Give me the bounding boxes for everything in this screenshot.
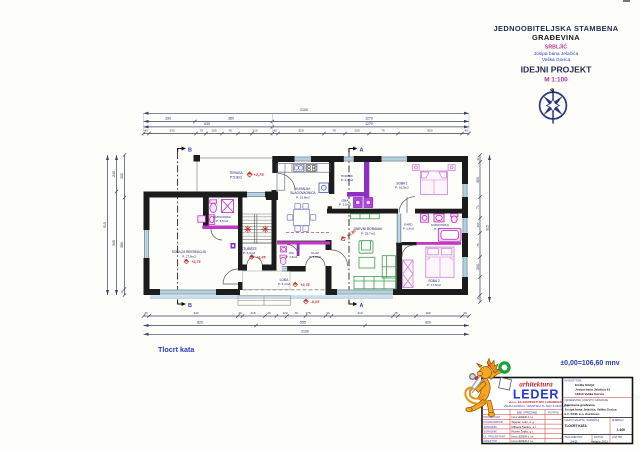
svg-text:40: 40 [273,129,277,133]
svg-text:10410 Velika Gorica: 10410 Velika Gorica [575,392,604,396]
svg-text:±0,00=106,60 mnv: ±0,00=106,60 mnv [560,360,619,367]
svg-text:40: 40 [463,311,467,315]
svg-text:70: 70 [294,311,298,315]
svg-text:915: 915 [485,225,489,231]
svg-text:P: 1,5m2: P: 1,5m2 [286,255,298,259]
svg-text:SOBA ZA REKREACIJU: SOBA ZA REKREACIJU [172,250,207,254]
svg-text:P: 2,4m2: P: 2,4m2 [341,178,353,182]
svg-text:360: 360 [228,116,234,120]
svg-text:M 1:100: M 1:100 [544,77,568,84]
svg-text:P: 6,9m2: P: 6,9m2 [243,251,255,255]
svg-text:400: 400 [425,311,430,315]
svg-text:200: 200 [476,264,480,270]
svg-text:Mihaela Markov, a.t.: Mihaela Markov, a.t. [512,425,537,429]
svg-text:P: 5,5m2: P: 5,5m2 [216,219,228,223]
svg-text:GRAĐEVINA, MJESTO GRADNJE: GRAĐEVINA, MJESTO GRADNJE [565,398,609,402]
svg-text:330: 330 [169,129,174,133]
svg-text:240: 240 [112,171,116,177]
svg-text:40: 40 [326,311,330,315]
svg-text:P: 1,9m2: P: 1,9m2 [403,226,415,230]
svg-text:40: 40 [464,129,468,133]
svg-text:+2,75: +2,75 [253,172,264,177]
svg-text:2100: 2100 [300,108,308,112]
svg-text:Emilia Srbljić: Emilia Srbljić [575,383,595,387]
svg-text:40: 40 [238,311,242,315]
svg-text:VELIKA GORICA, HRVATSKA TL./FA: VELIKA GORICA, HRVATSKA TL./FAX 01/6265-… [504,404,569,408]
svg-text:DNEVNI BORAVAK: DNEVNI BORAVAK [354,227,384,231]
svg-text:75: 75 [394,311,398,315]
svg-text:Ivna LEDER d.i.a.: Ivna LEDER d.i.a. [512,415,534,419]
svg-text:555: 555 [300,321,306,325]
svg-text:100: 100 [211,129,216,133]
svg-text:330: 330 [165,116,171,120]
svg-text:100: 100 [476,222,480,227]
svg-text:Josipa bana Jelačića, Velika G: Josipa bana Jelačića, Velika Gorica [565,408,617,412]
svg-text:20: 20 [267,311,271,315]
svg-text:P: 16,3m2: P: 16,3m2 [395,186,409,190]
svg-text:DIREKTOR: DIREKTOR [484,439,497,443]
svg-text:P: 27,8m2: P: 27,8m2 [182,254,196,258]
svg-text:INVESTITOR:: INVESTITOR: [565,379,583,383]
svg-text:2100: 2100 [301,330,309,334]
svg-text:B: B [188,303,192,309]
svg-text:KOORDINATOR: KOORDINATOR [484,420,503,424]
svg-text:40: 40 [144,311,148,315]
svg-text:GL. PROJEKTANT: GL. PROJEKTANT [484,434,506,438]
svg-text:k.č. 2345, k.o. Kurilovec: k.č. 2345, k.o. Kurilovec [565,412,600,416]
svg-text:75: 75 [476,243,480,247]
svg-text:B: B [188,148,192,154]
svg-text:LIST BR.: LIST BR. [612,435,623,439]
svg-text:380: 380 [120,242,124,248]
svg-text:Stjepan Leko, d. g.: Stjepan Leko, d. g. [512,420,536,424]
svg-text:71: 71 [476,205,480,209]
svg-text:GRAĐEVINA: GRAĐEVINA [532,33,580,42]
svg-text:+1,45: +1,45 [256,256,266,260]
svg-text:Ivna LEDER d.i.a.: Ivna LEDER d.i.a. [512,439,534,443]
svg-text:Velika Gorica: Velika Gorica [542,57,571,63]
svg-text:IME I PREZIME: IME I PREZIME [517,410,537,414]
svg-text:120: 120 [282,311,287,315]
svg-text:Josipa bana Jelačića: Josipa bana Jelačića [534,51,579,57]
svg-text:-0,03: -0,03 [311,300,321,304]
svg-text:A: A [360,148,364,154]
svg-text:P: 1,5m2: P: 1,5m2 [339,203,351,207]
svg-text:343: 343 [193,311,198,315]
svg-text:210: 210 [252,129,257,133]
svg-text:300: 300 [476,177,480,183]
svg-text:POTPIS: POTPIS [548,410,559,414]
svg-text:P:5,0m2: P:5,0m2 [230,175,242,179]
svg-text:TLOCRT KATA: TLOCRT KATA [565,424,588,428]
svg-text:TERASA: TERASA [229,171,243,175]
svg-text:1270: 1270 [365,116,373,120]
svg-text:P: 15,8m2: P: 15,8m2 [296,195,310,199]
svg-text:SRBLJIĆ: SRBLJIĆ [545,43,567,51]
svg-text:A: A [360,303,364,309]
svg-text:SURADNIK: SURADNIK [484,425,498,429]
svg-text:75: 75 [381,129,385,133]
svg-text:320: 320 [298,129,303,133]
svg-text:P: 6,3m2: P: 6,3m2 [278,282,290,286]
svg-text:200: 200 [354,129,359,133]
svg-text:P: 25,7m2: P: 25,7m2 [361,231,375,235]
svg-text:215: 215 [250,311,255,315]
svg-text:73: 73 [199,129,203,133]
svg-text:Robert Željko, g.t.: Robert Željko, g.t. [512,429,534,434]
svg-text:Tlocrt kata: Tlocrt kata [158,345,195,354]
svg-text:920: 920 [425,321,431,325]
svg-text:70: 70 [332,129,336,133]
svg-text:40: 40 [144,129,148,133]
svg-text:NAZIV NACRTA, SADRŽAJ: NAZIV NACRTA, SADRŽAJ [565,417,600,422]
svg-text:+2,75: +2,75 [300,283,310,287]
svg-text:IDEJNI PROJEKT: IDEJNI PROJEKT [521,65,592,75]
svg-text:P: 4,5m2: P: 4,5m2 [309,255,321,259]
svg-text:24/11: 24/11 [570,439,578,443]
svg-text:820: 820 [427,129,432,133]
svg-text:Josipa bana Jelačića 91: Josipa bana Jelačića 91 [575,388,610,392]
svg-text:veljača 2011.: veljača 2011. [591,439,609,443]
svg-text:175: 175 [305,311,310,315]
svg-text:413: 413 [357,311,362,315]
svg-text:MJERILO: MJERILO [612,418,624,422]
svg-text:630: 630 [204,122,210,126]
svg-text:Ivna LEDER d.i.a.: Ivna LEDER d.i.a. [512,434,534,438]
svg-text:1:100: 1:100 [617,428,625,432]
svg-text:P: 17,6m2: P: 17,6m2 [427,283,441,287]
svg-text:JEDNOOBITELJSKA STAMBENA: JEDNOOBITELJSKA STAMBENA [494,24,619,33]
svg-text:200: 200 [120,173,124,179]
svg-text:S: S [550,88,555,95]
svg-text:75: 75 [228,129,232,133]
svg-text:+2,75: +2,75 [191,260,201,264]
svg-text:SURADNIK: SURADNIK [484,430,498,434]
svg-text:345: 345 [112,240,116,246]
svg-text:Stambena građevina: Stambena građevina [565,403,596,407]
svg-text:915: 915 [103,222,107,228]
svg-text:1270: 1270 [365,122,373,126]
svg-text:820: 820 [197,321,203,325]
